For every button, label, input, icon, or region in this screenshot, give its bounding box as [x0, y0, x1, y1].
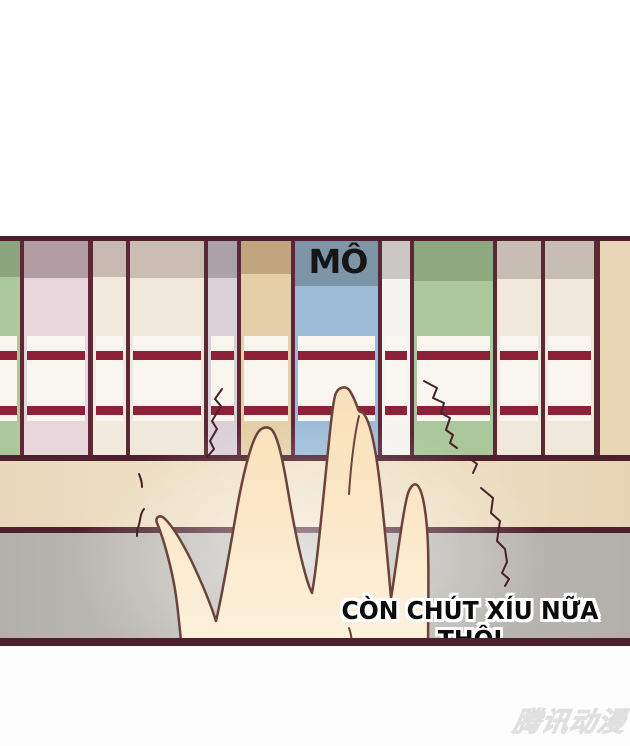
page-top-margin — [0, 0, 630, 236]
watermark: 腾讯动漫 — [511, 700, 630, 739]
crack-right-mid — [469, 458, 477, 473]
sfx-text: MÔ — [306, 242, 370, 281]
crack-tick-curved — [137, 509, 144, 536]
crack-tick-small — [139, 474, 142, 487]
crack-left — [207, 389, 222, 457]
crack-right-upper — [424, 381, 457, 448]
comic-page: MÔ CÒN CHÚT XÍU NỮA THÔI 腾讯动漫 — [0, 0, 630, 746]
comic-panel: MÔ CÒN CHÚT XÍU NỮA THÔI — [0, 236, 630, 646]
crack-right-lower — [481, 488, 509, 586]
panel-bottom-border — [0, 638, 630, 646]
page-bottom-margin: 腾讯动漫 — [0, 646, 630, 746]
hand-and-cracks-art — [0, 236, 630, 646]
